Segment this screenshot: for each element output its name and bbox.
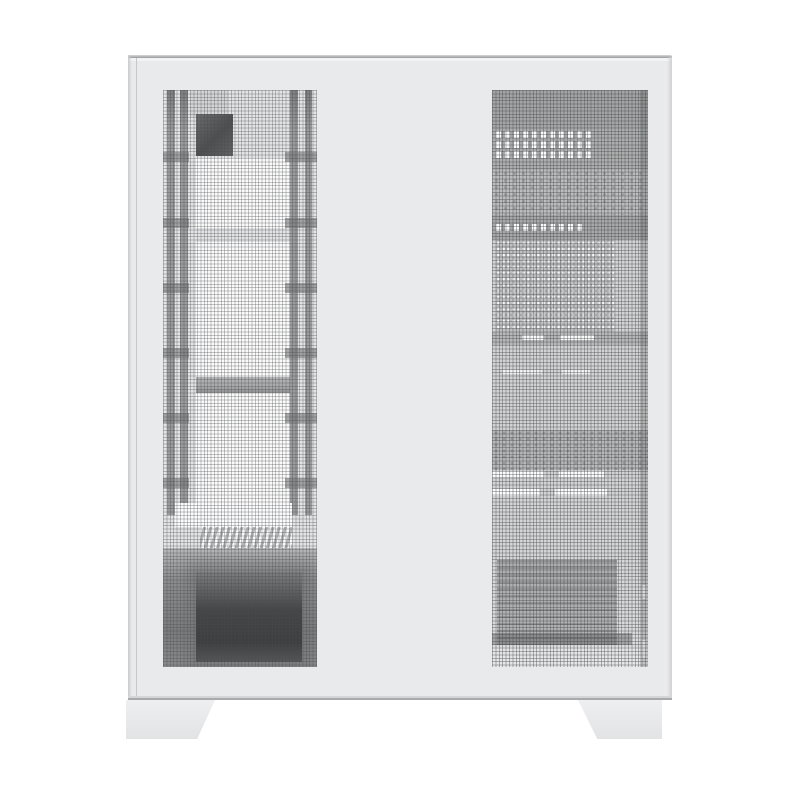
bracket-opening (196, 158, 290, 228)
front-panel-seam (136, 58, 137, 698)
rail-tab (163, 283, 189, 293)
mesh-shade-band (492, 90, 648, 128)
mesh-light-band (492, 647, 648, 667)
psu-body (196, 572, 302, 662)
case-left-edge (128, 55, 132, 700)
reflection-slash (492, 471, 544, 477)
reflection-slash (555, 489, 607, 496)
case-bottom-edge (128, 698, 672, 700)
rail-tab (285, 152, 317, 162)
pc-case (128, 55, 672, 700)
fan-bracket-bar (196, 377, 290, 393)
vent-slot-row (496, 224, 584, 231)
rail-tab (285, 348, 317, 358)
bracket-opening (196, 393, 290, 503)
rail-tab (163, 478, 189, 488)
psu-shroud-top (175, 503, 292, 527)
internal-component-block (196, 114, 233, 156)
rail-tab (285, 218, 317, 228)
front-mesh-panel (163, 90, 317, 667)
panel-edge-shadow (640, 90, 648, 667)
rail-tab (163, 348, 189, 358)
vent-slot-group (492, 128, 648, 170)
mesh-mottle-band (492, 170, 648, 215)
case-foot-right (578, 700, 662, 739)
rail-tab (163, 413, 189, 423)
reflection-slash (559, 471, 604, 477)
mesh-shade-band (492, 215, 648, 240)
vent-slot-row (496, 141, 592, 148)
reflection-slash (502, 370, 542, 374)
mesh-mottle-band (492, 430, 648, 470)
dark-interior-row (492, 633, 632, 645)
vent-slot-row (496, 151, 592, 158)
psu-bay (163, 548, 317, 667)
rail-tab (163, 152, 189, 162)
case-foot-left (126, 700, 215, 739)
reflection-slash (522, 335, 544, 340)
rail-tab (285, 413, 317, 423)
side-mesh-panel (492, 90, 648, 667)
bracket-opening (196, 242, 290, 377)
reflection-slash (560, 335, 594, 340)
dot-vent-patch (496, 240, 614, 332)
reflection-slash (562, 370, 590, 374)
rail-tab (285, 478, 317, 488)
internal-bracket-top (190, 90, 228, 117)
vent-slot-row (496, 131, 592, 138)
product-photo-stage (0, 0, 800, 800)
rail-tab (163, 218, 189, 228)
reflection-slash (492, 489, 540, 496)
case-right-edge (667, 57, 672, 700)
psu-vent-grille (200, 527, 292, 548)
rail-tab (285, 283, 317, 293)
case-top-highlight (128, 58, 672, 61)
